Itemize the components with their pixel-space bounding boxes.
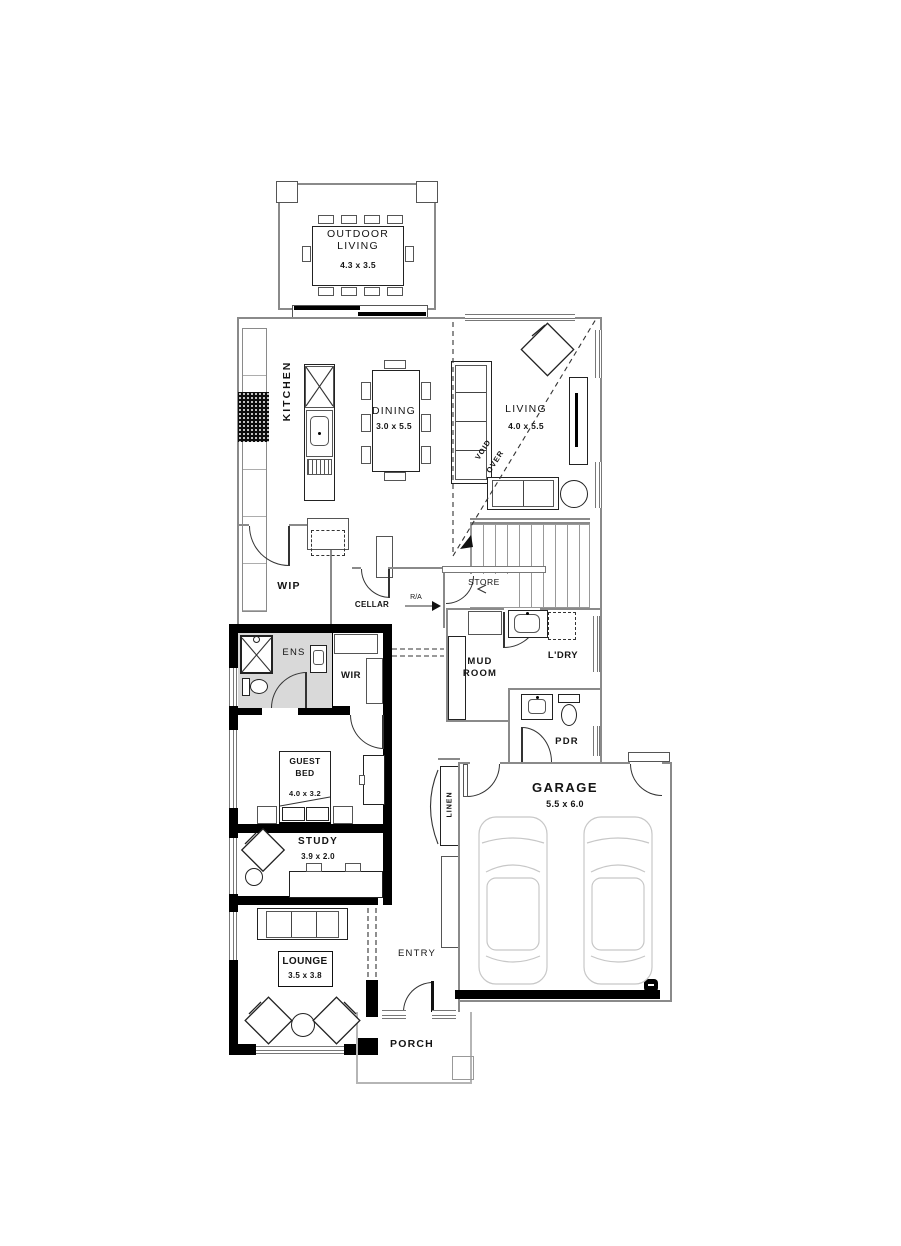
room-dims-outdoor-living: 4.3 x 3.5 <box>340 260 376 270</box>
room-dims-study: 3.9 x 2.0 <box>301 852 335 861</box>
kitchen-cabinets <box>242 328 267 612</box>
wall-black <box>229 824 392 833</box>
window <box>593 726 600 756</box>
sofa-cushions <box>266 911 339 938</box>
window <box>229 668 237 708</box>
kitchen-appliance-block <box>238 392 269 442</box>
toilet-cistern <box>558 694 580 703</box>
wall-segment <box>508 688 510 764</box>
room-label-porch: PORCH <box>390 1038 434 1050</box>
chair <box>302 246 311 262</box>
chair <box>387 215 403 224</box>
wall-segment <box>508 688 602 690</box>
chair <box>318 215 334 224</box>
window <box>593 616 600 672</box>
room-dims-living: 4.0 x 5.5 <box>508 421 544 431</box>
chair <box>384 360 406 369</box>
tv-unit <box>569 377 588 465</box>
wall-segment <box>670 762 672 1002</box>
drainer <box>307 459 332 475</box>
wall-segment <box>446 720 510 722</box>
door-leaf <box>521 727 523 762</box>
room-dims-garage: 5.5 x 6.0 <box>546 799 584 809</box>
room-label-ens: ENS <box>282 647 305 658</box>
room-label-store: STORE <box>468 577 500 587</box>
washer-space <box>548 612 576 640</box>
stair-landing-line <box>470 518 590 520</box>
basin <box>313 650 324 665</box>
wall-segment <box>458 1000 672 1002</box>
pillow <box>282 807 305 821</box>
room-label-living: LIVING <box>505 403 547 415</box>
tap <box>526 612 529 615</box>
wall-segment <box>500 762 630 764</box>
post <box>276 181 298 203</box>
door-leaf <box>628 752 670 762</box>
window <box>595 462 602 508</box>
door-swing <box>630 764 662 796</box>
wall-black <box>229 808 238 838</box>
door-swing <box>350 715 384 749</box>
car <box>479 817 547 984</box>
wall-segment <box>458 762 460 1012</box>
coffee-table <box>291 1013 315 1037</box>
shower-rose <box>253 636 260 643</box>
chair <box>306 863 322 872</box>
door-leaf <box>463 764 468 797</box>
wall-segment <box>278 183 436 185</box>
robe-shelf <box>366 658 383 704</box>
chair <box>421 446 431 464</box>
porch-column <box>452 1056 474 1080</box>
room-label-guest: GUEST <box>289 756 320 766</box>
chair <box>345 863 361 872</box>
chair <box>341 215 357 224</box>
wall-segment <box>446 608 504 610</box>
room-label-entry: ENTRY <box>398 948 436 959</box>
wall-black <box>229 1044 256 1055</box>
sink-bowl <box>310 416 329 446</box>
wall-segment <box>388 567 443 569</box>
window <box>229 838 237 894</box>
room-dims-lounge: 3.5 x 3.8 <box>288 971 322 980</box>
wall-segment <box>352 567 361 569</box>
chair <box>361 414 371 432</box>
door-leaf <box>382 715 384 749</box>
chair <box>384 472 406 481</box>
wall-segment <box>600 317 602 764</box>
dresser-handle <box>359 775 365 785</box>
wall-black <box>356 1038 378 1053</box>
room-label-linen: LINEN <box>447 775 454 835</box>
garage-door-bar <box>455 990 660 999</box>
chair <box>361 382 371 400</box>
chair <box>361 446 371 464</box>
wall-segment <box>237 317 239 627</box>
chair <box>405 246 414 262</box>
room-label-wir: WIR <box>341 670 361 681</box>
room-label-kitchen: KITCHEN <box>281 346 293 436</box>
room-dims-dining: 3.0 x 5.5 <box>376 421 412 431</box>
stair-balustrade <box>442 566 546 573</box>
side-table <box>560 480 588 508</box>
window <box>229 912 237 960</box>
room-label-mud: ROOM <box>463 668 497 679</box>
tv <box>575 393 578 447</box>
room-label-garage: GARAGE <box>532 780 598 795</box>
plan-linework <box>0 0 901 1246</box>
room-label-mud: MUD <box>467 656 492 667</box>
wall-black <box>229 960 238 1055</box>
bed-head <box>279 822 331 825</box>
bedside-table <box>257 806 277 824</box>
room-label-outdoor-living: OUTDOOR <box>327 228 389 240</box>
wall-segment <box>438 758 460 760</box>
robe-shelf <box>334 634 378 654</box>
fridge-dashed <box>311 530 345 556</box>
bedside-table <box>333 806 353 824</box>
door-leaf <box>288 526 290 566</box>
chair <box>387 287 403 296</box>
room-label-dining: DINING <box>372 405 416 417</box>
toilet-cistern <box>242 678 250 696</box>
porch-edge <box>356 1082 472 1084</box>
window <box>465 314 575 321</box>
wall-black <box>229 624 238 668</box>
wall-segment <box>443 567 445 628</box>
room-label-outdoor-living: LIVING <box>337 240 379 252</box>
wall-black <box>366 980 378 1017</box>
meter-slit <box>648 984 654 986</box>
door-leaf <box>305 672 307 708</box>
toilet-bowl <box>250 679 268 694</box>
window <box>432 1010 456 1019</box>
sliding-door-panel <box>294 306 360 310</box>
window <box>382 1010 406 1019</box>
window <box>256 1046 344 1054</box>
door-swing <box>403 982 433 1012</box>
couch-cushions <box>492 480 554 507</box>
room-label-wip: WIP <box>277 580 300 592</box>
room-label-laundry: L'DRY <box>548 650 578 661</box>
door-leaf <box>388 569 390 598</box>
floor-plan: OUTDOOR LIVING 4.3 x 3.5 KITCHEN DINING … <box>0 0 901 1246</box>
dresser <box>363 755 385 805</box>
room-label-guest: BED <box>295 768 314 778</box>
wall-black <box>229 624 392 633</box>
room-label-cellar: CELLAR <box>355 600 389 609</box>
room-label-lounge: LOUNGE <box>282 956 327 967</box>
window <box>595 330 602 378</box>
front-door-leaf <box>431 981 434 1012</box>
mudroom-cabinet <box>468 611 502 635</box>
room-label-study: STUDY <box>298 836 338 847</box>
chair <box>364 287 380 296</box>
door-swing <box>522 727 552 762</box>
door-leaf <box>503 612 505 648</box>
door-swing <box>361 569 390 598</box>
sliding-door-panel <box>358 312 426 316</box>
window <box>229 730 237 808</box>
meter-box <box>644 979 658 992</box>
wall-segment <box>237 524 249 526</box>
toilet-bowl <box>561 704 577 726</box>
car <box>584 817 652 984</box>
chair <box>341 287 357 296</box>
chair <box>421 382 431 400</box>
pillow <box>306 807 329 821</box>
post <box>416 181 438 203</box>
return-air-label: R/A <box>410 594 422 601</box>
chair <box>421 414 431 432</box>
trough-bowl <box>514 614 540 633</box>
door-swing <box>467 764 500 797</box>
desk <box>289 871 383 898</box>
cooktop <box>305 366 334 408</box>
chair <box>318 287 334 296</box>
chair <box>364 215 380 224</box>
porch-edge <box>356 1012 358 1084</box>
tap <box>318 432 321 435</box>
wall-segment <box>540 608 602 610</box>
tap <box>536 696 539 699</box>
side-table <box>245 868 263 886</box>
room-dims-guest: 4.0 x 3.2 <box>289 789 321 798</box>
room-label-powder: PDR <box>555 736 579 747</box>
basin <box>528 699 546 714</box>
